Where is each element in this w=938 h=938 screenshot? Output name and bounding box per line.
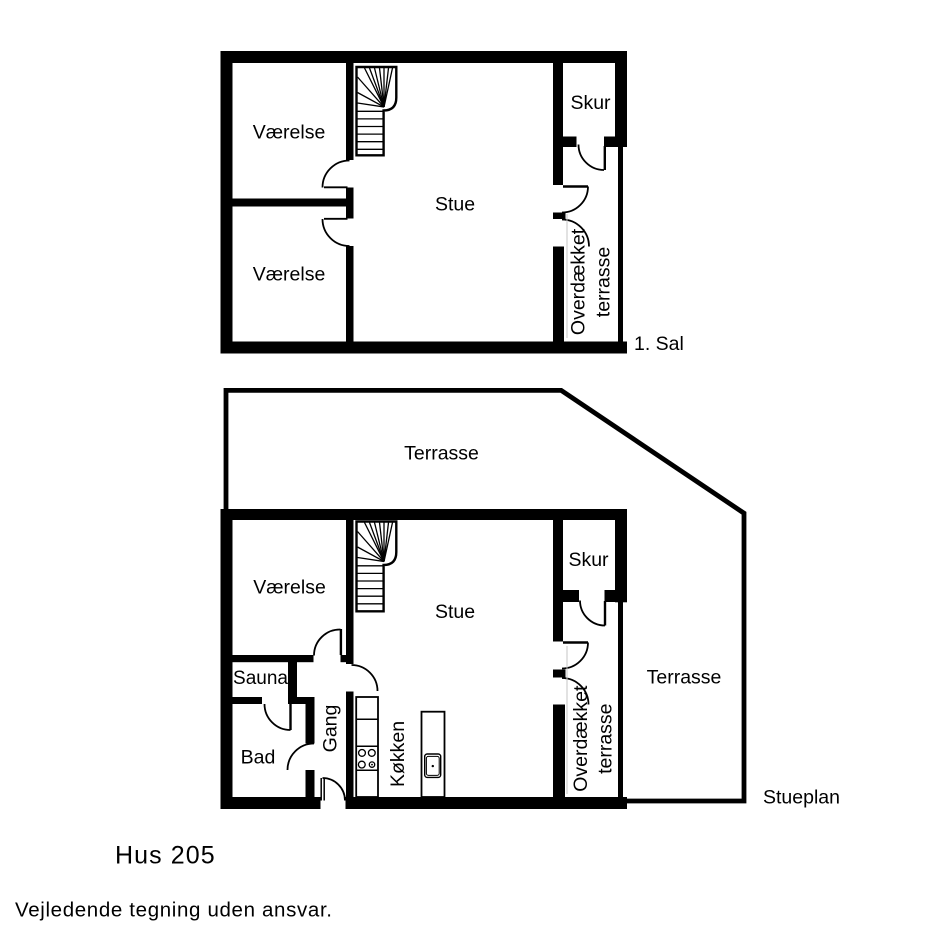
svg-text:Stue: Stue <box>435 194 475 216</box>
svg-text:Terrasse: Terrasse <box>404 443 479 465</box>
svg-text:1. Sal: 1. Sal <box>634 333 684 355</box>
svg-text:Værelse: Værelse <box>253 122 326 144</box>
svg-text:Stue: Stue <box>435 601 475 623</box>
svg-text:Bad: Bad <box>241 747 276 769</box>
svg-text:Skur: Skur <box>570 92 611 114</box>
svg-text:Værelse: Værelse <box>253 577 326 599</box>
svg-text:Sauna: Sauna <box>233 668 288 689</box>
svg-text:Skur: Skur <box>568 549 609 571</box>
svg-text:Terrasse: Terrasse <box>647 667 722 689</box>
svg-text:Gang: Gang <box>320 705 342 753</box>
svg-text:Hus 205: Hus 205 <box>115 842 216 870</box>
svg-text:Vejledende tegning uden ansvar: Vejledende tegning uden ansvar. <box>15 899 333 922</box>
svg-text:Værelse: Værelse <box>253 264 326 286</box>
svg-text:Stueplan: Stueplan <box>763 787 840 809</box>
svg-text:Køkken: Køkken <box>387 721 409 787</box>
